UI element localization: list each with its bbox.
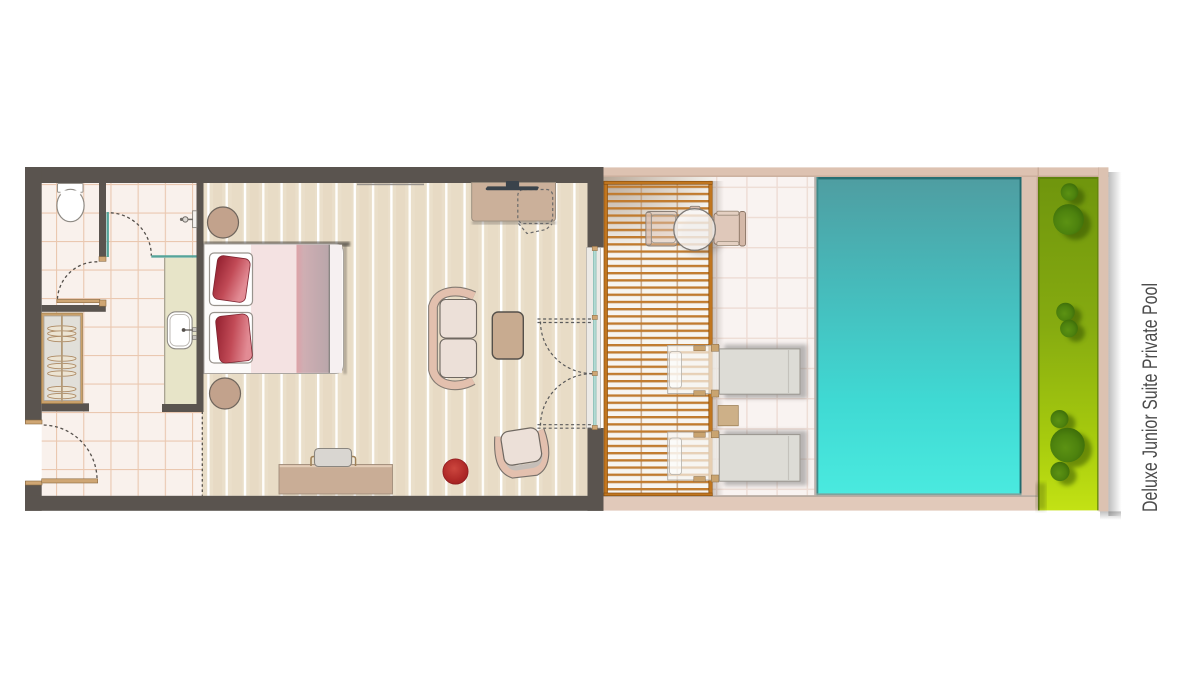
svg-text:Deluxe Junior Suite Private Po: Deluxe Junior Suite Private Pool <box>1139 283 1162 512</box>
